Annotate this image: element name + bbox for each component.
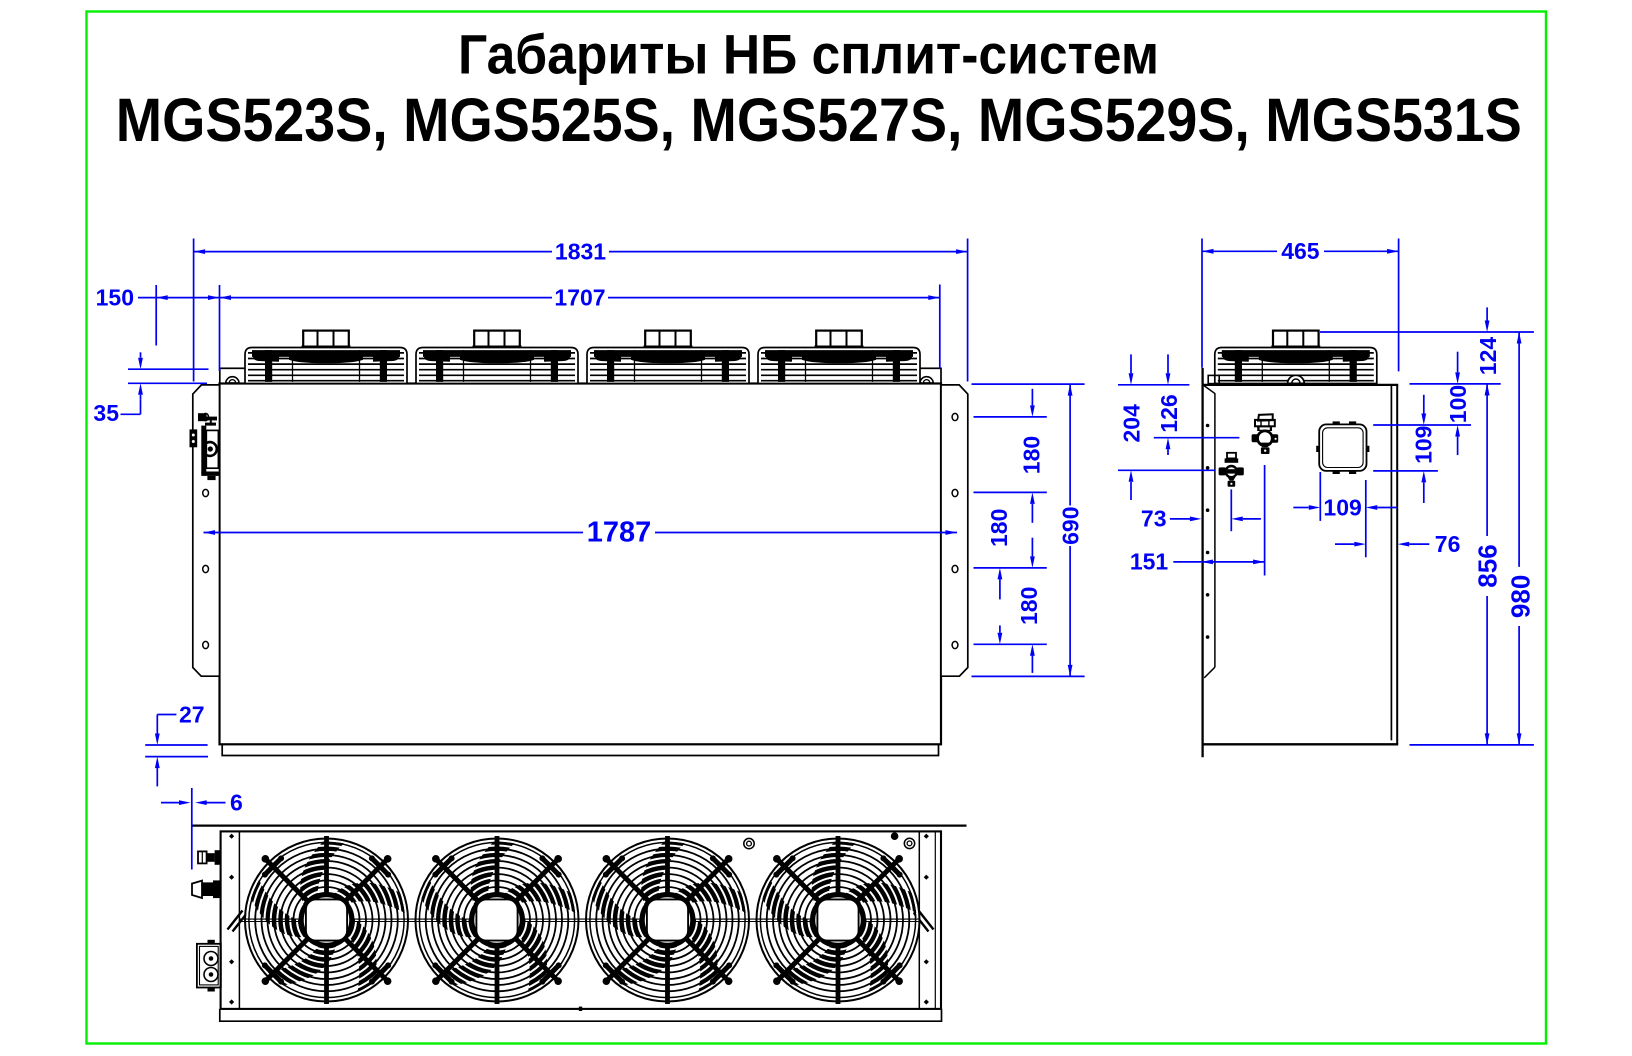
svg-text:76: 76 bbox=[1435, 531, 1461, 557]
svg-text:150: 150 bbox=[96, 285, 134, 311]
svg-text:35: 35 bbox=[93, 400, 119, 426]
svg-text:856: 856 bbox=[1473, 544, 1503, 587]
svg-text:180: 180 bbox=[1019, 436, 1045, 474]
svg-text:690: 690 bbox=[1058, 507, 1084, 545]
svg-text:Габариты НБ сплит-систем: Габариты НБ сплит-систем bbox=[458, 23, 1159, 86]
svg-text:124: 124 bbox=[1475, 337, 1501, 376]
svg-text:204: 204 bbox=[1118, 404, 1144, 443]
svg-text:6: 6 bbox=[230, 790, 243, 816]
svg-text:1787: 1787 bbox=[587, 517, 652, 549]
svg-text:1707: 1707 bbox=[554, 285, 605, 311]
svg-text:465: 465 bbox=[1281, 238, 1320, 264]
svg-text:MGS523S, MGS525S, MGS527S, MGS: MGS523S, MGS525S, MGS527S, MGS529S, MGS5… bbox=[116, 86, 1522, 154]
svg-text:126: 126 bbox=[1156, 394, 1182, 432]
svg-text:73: 73 bbox=[1141, 506, 1167, 532]
svg-text:27: 27 bbox=[179, 702, 205, 728]
svg-text:180: 180 bbox=[1016, 587, 1042, 625]
svg-text:1831: 1831 bbox=[555, 238, 606, 264]
svg-text:180: 180 bbox=[986, 509, 1012, 547]
svg-text:100: 100 bbox=[1445, 385, 1471, 423]
svg-text:109: 109 bbox=[1411, 426, 1437, 464]
svg-text:980: 980 bbox=[1506, 575, 1536, 618]
svg-text:151: 151 bbox=[1130, 549, 1169, 575]
svg-text:109: 109 bbox=[1323, 494, 1361, 520]
